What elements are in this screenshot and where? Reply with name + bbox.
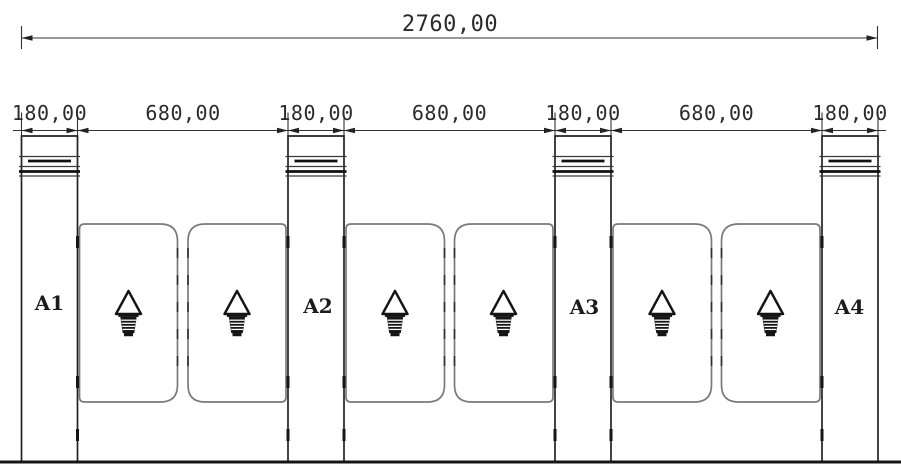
pillar-label: A2	[302, 294, 332, 318]
pillar-label: A4	[834, 295, 865, 319]
passage-2	[346, 224, 553, 402]
passage-1	[80, 224, 287, 402]
segment-dimension-label: 680,00	[145, 101, 220, 125]
pillar-cap	[553, 157, 614, 177]
pillar-cap	[820, 157, 881, 177]
pillar-cap	[19, 157, 80, 177]
overall-dimension: 2760,00	[22, 12, 878, 49]
overall-dimension-label: 2760,00	[402, 12, 498, 37]
segment-dimensions: 180,00 680,00 180,00 680,00 180,00 680,0…	[12, 101, 888, 149]
drawing-canvas: 2760,00	[0, 0, 901, 467]
pillar-cap	[286, 157, 347, 177]
pillar-label: A3	[569, 295, 599, 319]
dimension-arrow-icon	[22, 35, 33, 40]
segment-dimension-label: 180,00	[545, 101, 620, 125]
passage-3	[613, 224, 820, 402]
segment-dimension-label: 180,00	[812, 101, 887, 125]
turnstile-lane-technical-drawing: 2760,00	[0, 0, 901, 467]
segment-dimension-label: 180,00	[12, 101, 87, 125]
pillar-a3: A3	[553, 136, 614, 462]
pillar-a1: A1	[19, 136, 80, 462]
pillar-a4: A4	[820, 136, 881, 462]
pillar-a2: A2	[286, 136, 347, 462]
segment-dimension-label: 680,00	[679, 101, 754, 125]
segment-dimension-label: 180,00	[278, 101, 353, 125]
pillar-label: A1	[34, 291, 64, 315]
dimension-arrow-icon	[867, 35, 878, 40]
segment-dimension-label: 680,00	[412, 101, 487, 125]
